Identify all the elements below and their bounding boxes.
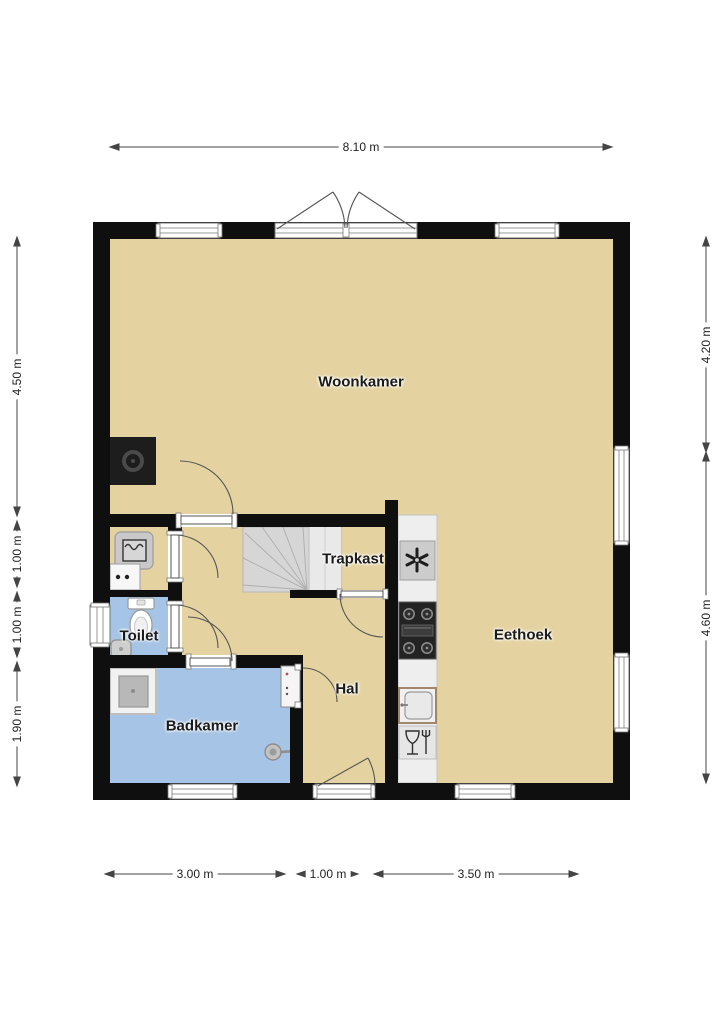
wall-trapkast [290,590,340,598]
window-icon [90,603,110,647]
shower-icon [110,668,156,714]
floor-areas [110,239,613,783]
window-icon [495,223,559,238]
dim-left-4: 1.90 m [10,702,24,747]
room-label-toilet: Toilet [120,628,159,645]
wall-nook-toilet [110,590,170,597]
window-icon [168,784,237,799]
dim-left-2: 1.00 m [10,532,24,577]
dim-bottom-1: 3.00 m [173,867,218,881]
dim-bottom-3: 3.50 m [454,867,499,881]
dim-left-3: 1.00 m [10,603,24,648]
window-icon [455,784,515,799]
dishwasher-icon [399,726,436,759]
wall-kitchen [385,500,398,783]
wall-livingroom-hall [110,514,398,527]
kitchen-sink-icon [399,688,436,723]
stove-icon [399,602,436,659]
window-icon [156,223,222,238]
room-label-badkamer: Badkamer [166,718,239,735]
wall-left [93,222,110,800]
window-icon [614,653,629,732]
dim-left-1: 4.50 m [10,355,24,400]
window-icon [614,446,629,545]
dim-right-2: 4.60 m [699,596,713,641]
kitchen-counter [398,515,437,783]
dim-right-1: 4.20 m [699,323,713,368]
fireplace-icon [110,437,156,485]
room-label-woonkamer: Woonkamer [318,374,404,391]
extractor-fan-icon [400,541,435,580]
floor-plan: Woonkamer Trapkast Eethoek Toilet Hal Ba… [0,0,724,1024]
french-doors-icon [275,192,417,238]
dim-bottom-2: 1.00 m [306,867,351,881]
room-label-trapkast: Trapkast [322,551,384,568]
washing-machine-icon [110,564,140,590]
dim-top-1: 8.10 m [339,140,384,154]
room-label-eethoek: Eethoek [494,627,552,644]
room-label-hal: Hal [335,681,358,698]
